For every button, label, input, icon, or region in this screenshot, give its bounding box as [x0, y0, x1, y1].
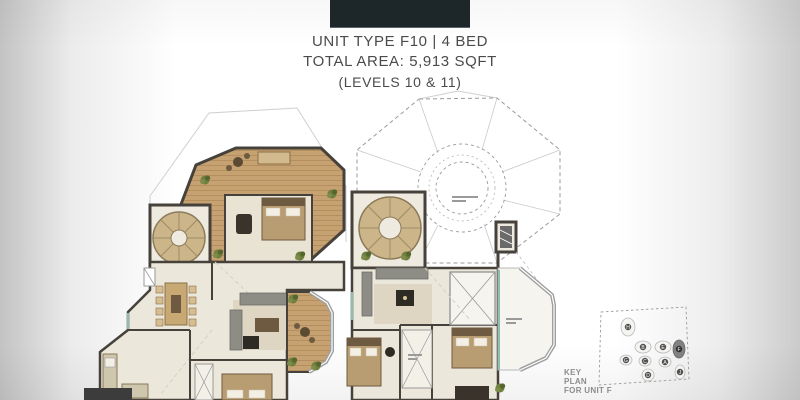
tv-console [243, 336, 259, 349]
bed [452, 328, 492, 368]
dome-outer-circle [418, 144, 506, 232]
balcony-chair [294, 323, 300, 329]
wardrobe [402, 330, 432, 388]
pillow [249, 390, 265, 398]
dome-middle-circle [429, 155, 495, 221]
building-label-f: F [677, 347, 680, 353]
balcony-chair [309, 337, 315, 343]
sink [105, 358, 115, 367]
floorplan-level11 [347, 91, 560, 400]
building-label-c: C [643, 359, 647, 365]
elevator-shaft [496, 222, 516, 252]
building-label-h: H [626, 325, 630, 331]
armchair [385, 347, 395, 357]
sofa [230, 310, 242, 350]
planter-strip [84, 388, 132, 400]
terrace-lounger [258, 152, 290, 164]
key-plan-caption-line3: FOR UNIT F [564, 386, 634, 395]
void-double-height [450, 272, 495, 325]
pillow [227, 390, 243, 398]
spiral-staircase [359, 197, 421, 259]
coffee-table [255, 318, 279, 332]
spiral-staircase [153, 212, 205, 264]
floorplan-level10 [84, 108, 346, 400]
building-label-d: D [646, 373, 650, 379]
sofa [240, 293, 294, 305]
dresser [455, 386, 489, 400]
sofa [376, 268, 428, 279]
room-label-placeholder [452, 196, 478, 202]
terrace-table [233, 157, 243, 167]
building-label-g: G [624, 358, 628, 364]
bed [347, 338, 381, 386]
brochure-page: UNIT TYPE F10 | 4 BED TOTAL AREA: 5,913 … [0, 0, 800, 400]
sofa [362, 272, 372, 316]
bed [262, 198, 305, 240]
terrace-chair [226, 165, 232, 171]
balcony [287, 292, 332, 372]
dome-inner-circle [436, 162, 488, 214]
balcony-table [300, 327, 310, 337]
terrace-chair [244, 153, 250, 159]
bay-window-room [498, 268, 554, 370]
floorplan-graphic: H B E F G C A D J [0, 0, 800, 400]
key-plan-caption-line2: PLAN [564, 377, 634, 386]
armchair [236, 214, 252, 234]
key-plan-caption-line1: KEY [564, 368, 634, 377]
key-plan-caption: KEY PLAN FOR UNIT F [564, 368, 634, 395]
fire-table-center [403, 296, 407, 300]
